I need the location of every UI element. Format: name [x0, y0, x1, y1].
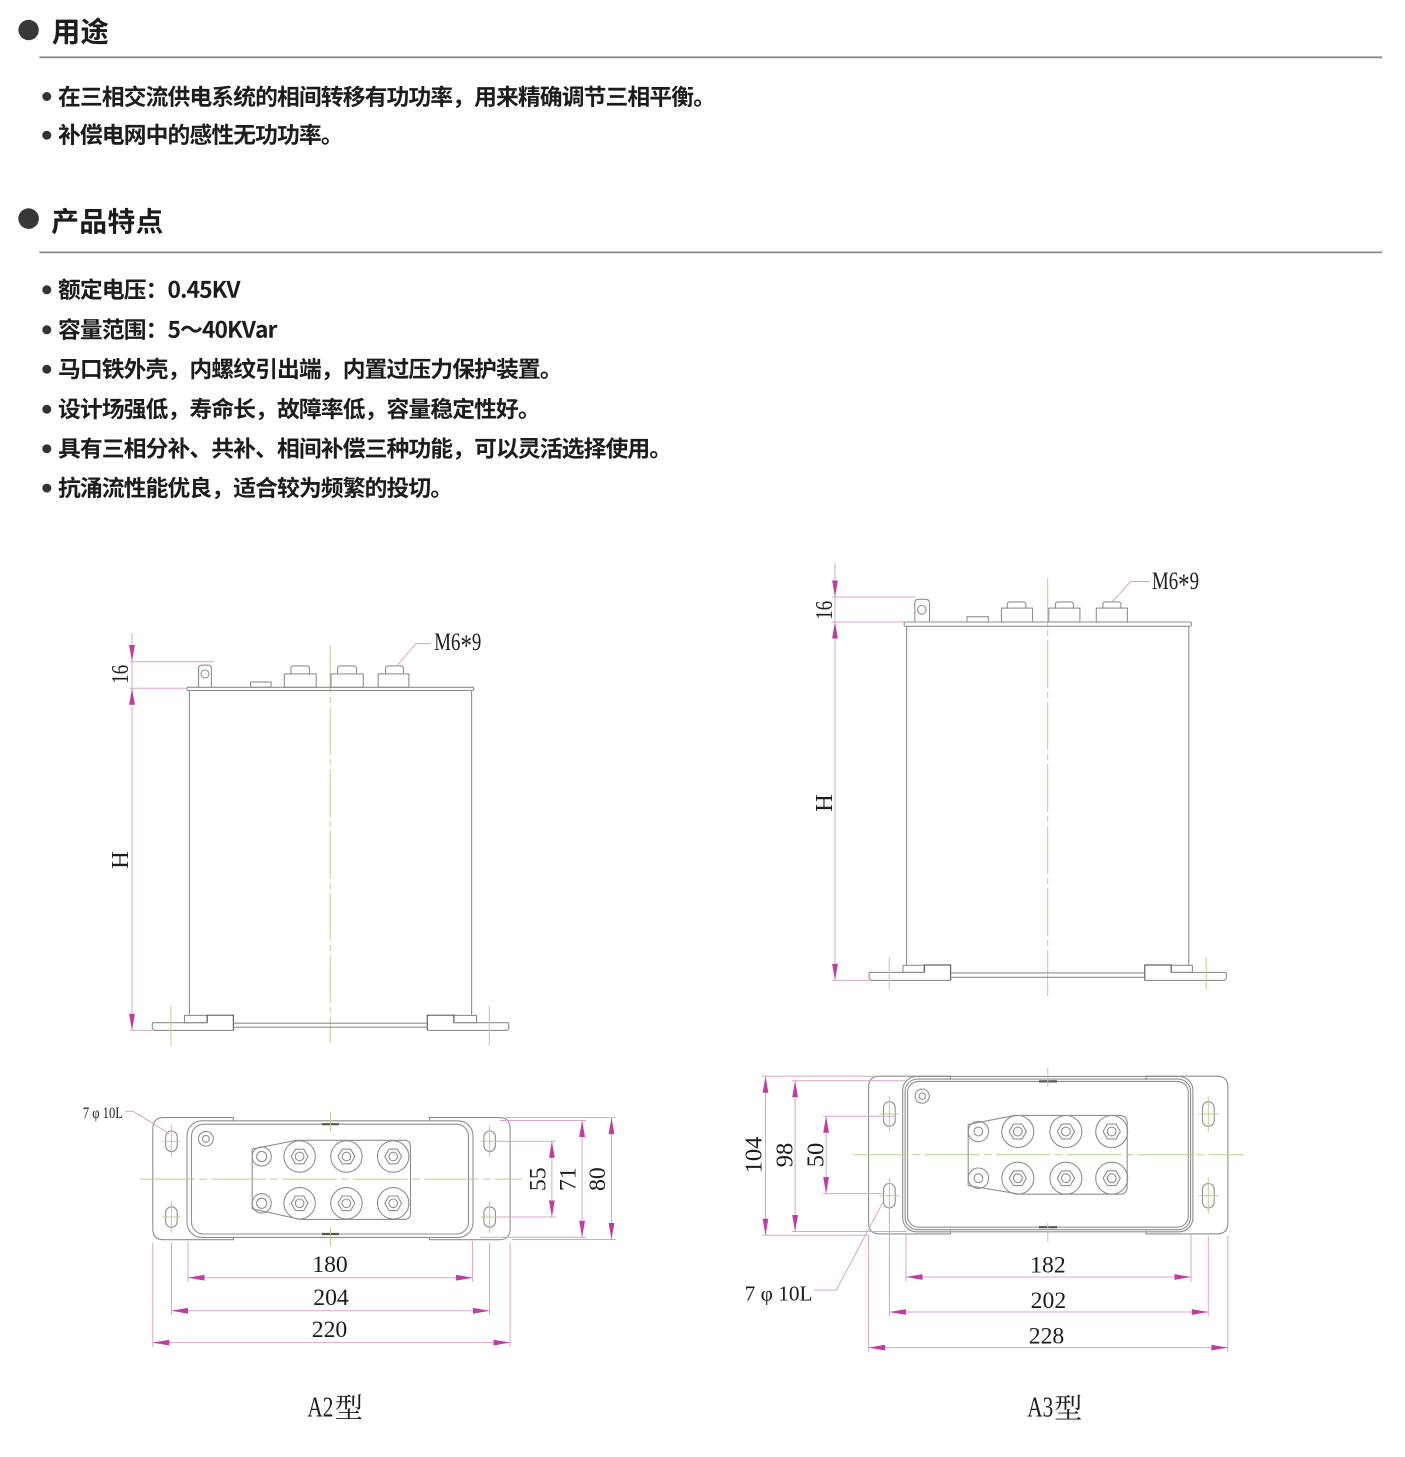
- svg-text:202: 202: [1031, 1288, 1067, 1314]
- svg-text:80: 80: [585, 1167, 611, 1191]
- svg-text:104: 104: [741, 1137, 768, 1174]
- svg-text:16: 16: [107, 665, 134, 684]
- svg-text:180: 180: [312, 1252, 348, 1278]
- svg-text:7 φ 10L: 7 φ 10L: [83, 1105, 123, 1122]
- svg-text:50: 50: [803, 1143, 830, 1168]
- svg-text:228: 228: [1029, 1323, 1065, 1349]
- svg-text:16: 16: [811, 601, 838, 620]
- svg-text:204: 204: [313, 1285, 349, 1311]
- svg-text:71: 71: [556, 1167, 582, 1191]
- svg-text:H: H: [107, 851, 134, 869]
- svg-text:A2: A2: [307, 1393, 333, 1424]
- svg-text:7 φ 10L: 7 φ 10L: [745, 1281, 813, 1305]
- svg-text:98: 98: [772, 1143, 799, 1168]
- svg-text:220: 220: [312, 1317, 348, 1343]
- svg-text:182: 182: [1030, 1253, 1066, 1279]
- svg-text:A3: A3: [1027, 1392, 1053, 1423]
- svg-text:55: 55: [526, 1167, 552, 1191]
- svg-text:H: H: [811, 794, 838, 812]
